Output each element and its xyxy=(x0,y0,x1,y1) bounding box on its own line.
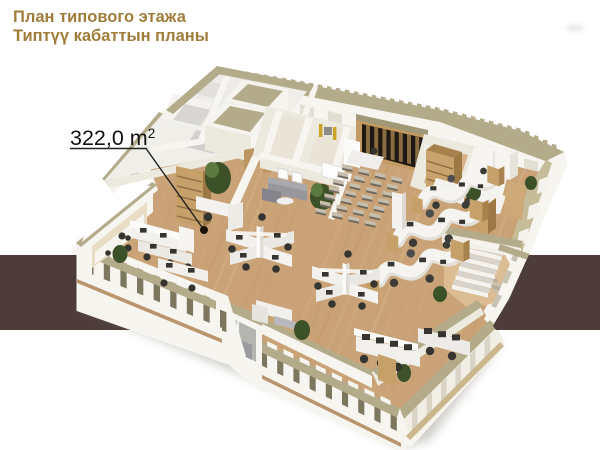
svg-text:322,0 m2: 322,0 m2 xyxy=(70,126,155,150)
svg-text:План типового этажа: План типового этажа xyxy=(13,8,187,26)
svg-text:Типтүү кабаттын планы: Типтүү кабаттын планы xyxy=(13,27,209,45)
